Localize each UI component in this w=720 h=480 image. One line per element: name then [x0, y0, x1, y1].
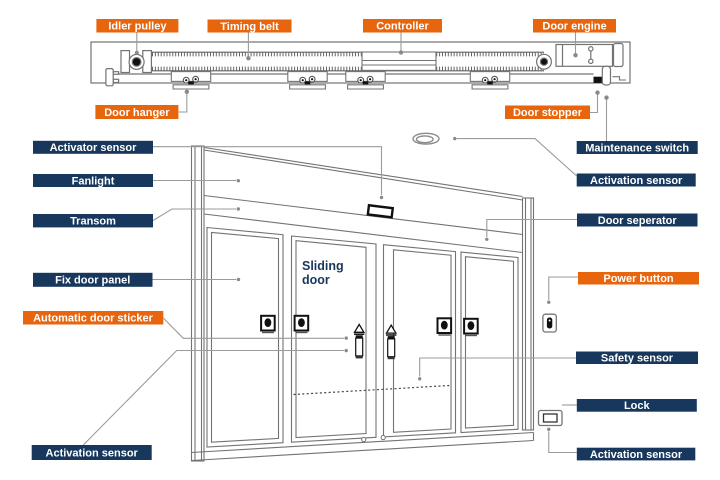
svg-text:Fix door panel: Fix door panel [55, 275, 130, 287]
svg-text:Door stopper: Door stopper [513, 107, 583, 119]
svg-text:Sliding: Sliding [302, 259, 344, 273]
svg-text:Power button: Power button [603, 273, 674, 285]
svg-text:Idler pulley: Idler pulley [108, 21, 167, 33]
svg-text:Activation sensor: Activation sensor [46, 448, 139, 460]
svg-text:Activation sensor: Activation sensor [590, 449, 683, 461]
svg-text:Lock: Lock [624, 400, 651, 412]
svg-text:door: door [302, 273, 330, 287]
svg-text:Timing belt: Timing belt [220, 21, 279, 33]
svg-text:Transom: Transom [70, 216, 116, 228]
svg-text:Door seperator: Door seperator [598, 215, 678, 227]
svg-text:Activation sensor: Activation sensor [590, 175, 683, 187]
svg-text:Door hanger: Door hanger [104, 107, 170, 119]
svg-text:Door engine: Door engine [542, 21, 606, 33]
svg-text:Fanlight: Fanlight [72, 175, 115, 187]
svg-text:Activator sensor: Activator sensor [50, 142, 138, 154]
svg-text:Controller: Controller [376, 21, 429, 33]
svg-text:Maintenance switch: Maintenance switch [585, 142, 689, 154]
svg-text:Safety sensor: Safety sensor [601, 353, 674, 365]
svg-text:Automatic door sticker: Automatic door sticker [33, 313, 154, 325]
